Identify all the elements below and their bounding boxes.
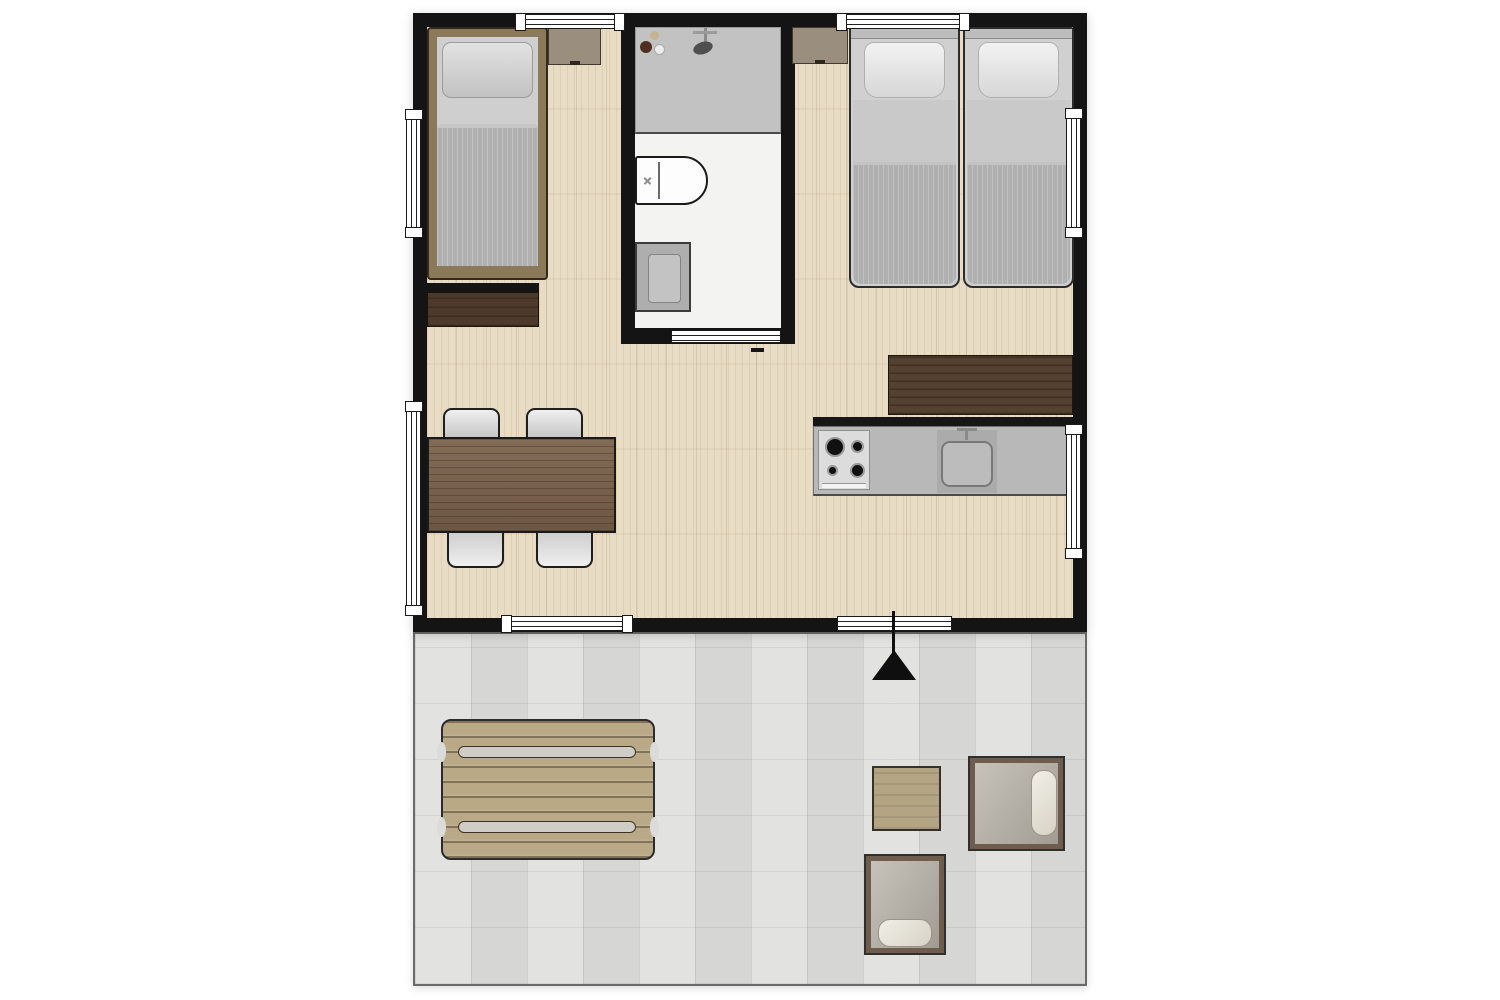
- toilet-flush-mark: [643, 176, 652, 185]
- nightstand-single-room: [548, 27, 601, 65]
- picnic-notch: [650, 742, 659, 762]
- window-top-left: [516, 14, 624, 29]
- kitchen-sink: [937, 430, 997, 493]
- toilet: [635, 156, 708, 205]
- blanket: [967, 162, 1070, 284]
- single-bed: [427, 27, 548, 280]
- side-table: [872, 766, 941, 831]
- toiletry-bottle: [654, 44, 665, 55]
- twin-bed-left: [849, 27, 960, 288]
- burner-medium: [851, 440, 864, 453]
- burner-large: [825, 437, 845, 457]
- armchair-cushion: [1031, 770, 1057, 836]
- washbasin: [635, 242, 691, 312]
- headboard: [965, 29, 1072, 39]
- faucet-icon: [965, 431, 968, 440]
- sheet: [967, 100, 1070, 162]
- nightstand-twin-room: [792, 27, 848, 64]
- burner-medium: [850, 463, 865, 478]
- toilet-tank-line: [658, 162, 660, 199]
- toiletry-bottle: [650, 31, 659, 40]
- armchair-cushion: [878, 919, 932, 947]
- lounge-armchair-right: [968, 756, 1065, 851]
- lounge-armchair-bottom: [864, 854, 946, 955]
- picnic-notch: [437, 742, 446, 762]
- entrance-axis-line: [892, 611, 895, 653]
- window-left-upper: [406, 110, 421, 237]
- picnic-notch: [650, 817, 659, 837]
- dresser: [427, 283, 539, 327]
- floor-plan-canvas: [0, 0, 1500, 1000]
- door-mark: [751, 348, 764, 352]
- blanket: [437, 124, 538, 266]
- blanket: [853, 162, 956, 284]
- window-right-upper: [1066, 109, 1081, 237]
- twin-bed-right: [963, 27, 1074, 288]
- pillow: [442, 42, 533, 98]
- dining-table: [427, 437, 616, 533]
- shower-tray: [635, 27, 781, 134]
- picnic-notch: [437, 817, 446, 837]
- window-top-right: [837, 14, 969, 29]
- washbasin-bowl: [648, 254, 681, 303]
- burner-small: [827, 465, 838, 476]
- picnic-bench-slot-top: [458, 746, 636, 758]
- oven-handle: [822, 483, 866, 488]
- headboard: [851, 29, 958, 39]
- entrance-arrow: [872, 650, 916, 680]
- stove-hob: [818, 430, 870, 490]
- sheet: [853, 100, 956, 162]
- kitchen-tall-cabinet: [888, 355, 1073, 415]
- pillow: [978, 42, 1059, 98]
- picnic-bench-slot-bottom: [458, 821, 636, 833]
- toiletry-bottle: [640, 41, 652, 53]
- pillow: [864, 42, 945, 98]
- counter-back-edge: [813, 417, 1073, 426]
- window-bottom: [502, 616, 632, 631]
- shower-head-icon: [693, 28, 717, 56]
- window-right-lower: [1066, 425, 1081, 558]
- window-left-lower: [406, 402, 421, 615]
- picnic-table: [441, 719, 655, 860]
- sink-bowl: [941, 441, 993, 487]
- bathroom-sliding-door: [671, 330, 781, 343]
